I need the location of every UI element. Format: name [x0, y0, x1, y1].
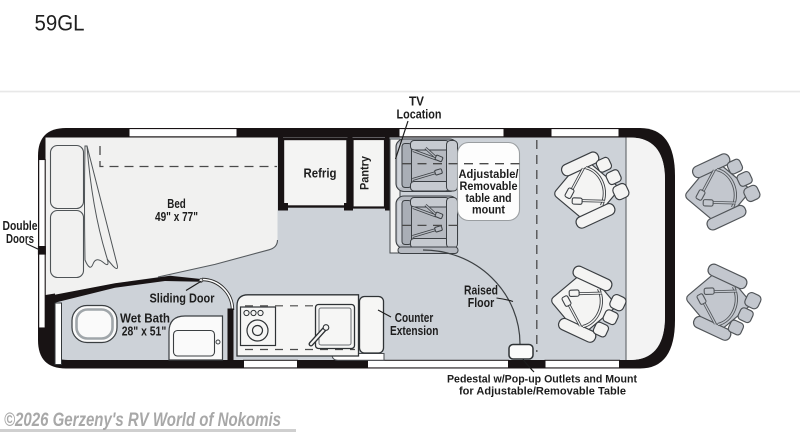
svg-text:28" x 51": 28" x 51"	[122, 324, 167, 338]
svg-text:©2026 Gerzeny's RV World of No: ©2026 Gerzeny's RV World of Nokomis	[4, 409, 281, 431]
svg-text:mount: mount	[472, 203, 505, 217]
svg-text:Counter: Counter	[395, 311, 434, 325]
svg-text:Bed: Bed	[167, 197, 186, 211]
svg-text:Location: Location	[397, 108, 442, 122]
svg-text:49" x 77": 49" x 77"	[155, 210, 198, 224]
svg-text:Extension: Extension	[390, 324, 439, 338]
svg-text:Double: Double	[3, 219, 38, 233]
svg-text:Refrig: Refrig	[304, 166, 337, 181]
svg-text:Pantry: Pantry	[358, 156, 372, 190]
svg-text:59GL: 59GL	[35, 11, 85, 36]
svg-text:Floor: Floor	[468, 296, 495, 310]
svg-text:Sliding Door: Sliding Door	[150, 292, 215, 306]
svg-text:Pedestal w/Pop-up Outlets and: Pedestal w/Pop-up Outlets and Mount	[447, 374, 637, 386]
svg-text:Doors: Doors	[6, 232, 34, 246]
svg-text:TV: TV	[409, 95, 425, 109]
svg-text:for Adjustable/Removable Table: for Adjustable/Removable Table	[459, 386, 626, 398]
